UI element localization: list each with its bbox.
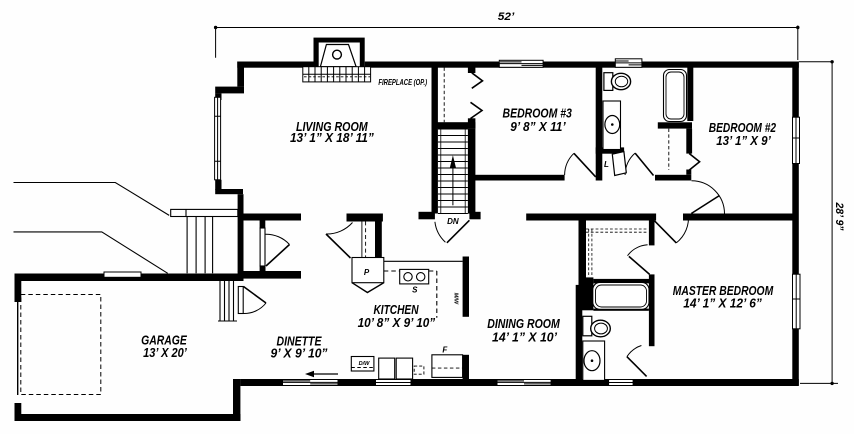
svg-text:52’: 52’ (498, 11, 516, 23)
svg-text:KITCHEN: KITCHEN (373, 303, 419, 317)
svg-text:DINING ROOM: DINING ROOM (487, 317, 560, 331)
svg-text:L: L (604, 160, 609, 169)
svg-text:9’ 8” X 11’: 9’ 8” X 11’ (510, 120, 566, 134)
svg-text:S: S (412, 286, 418, 295)
svg-text:P: P (364, 268, 370, 277)
svg-text:D/W: D/W (359, 361, 371, 367)
svg-text:M/W: M/W (453, 293, 459, 305)
svg-text:13’ 1” X 9’: 13’ 1” X 9’ (716, 134, 771, 148)
svg-text:13’ 1” X 18’ 11”: 13’ 1” X 18’ 11” (290, 131, 375, 145)
svg-text:BEDROOM #3: BEDROOM #3 (503, 106, 572, 120)
svg-text:10’ 8” X 9’ 10”: 10’ 8” X 9’ 10” (358, 316, 436, 330)
svg-text:28’ 9”: 28’ 9” (833, 202, 845, 231)
svg-text:13’ X 20’: 13’ X 20’ (143, 346, 187, 360)
svg-text:FIREPLACE (OP.): FIREPLACE (OP.) (378, 78, 427, 87)
svg-text:14’ 1” X 10’: 14’ 1” X 10’ (492, 330, 557, 344)
svg-text:DN: DN (447, 217, 459, 226)
svg-text:14’ 1” X 12’ 6”: 14’ 1” X 12’ 6” (683, 297, 762, 311)
svg-text:9’ X 9’ 10”: 9’ X 9’ 10” (271, 346, 329, 360)
